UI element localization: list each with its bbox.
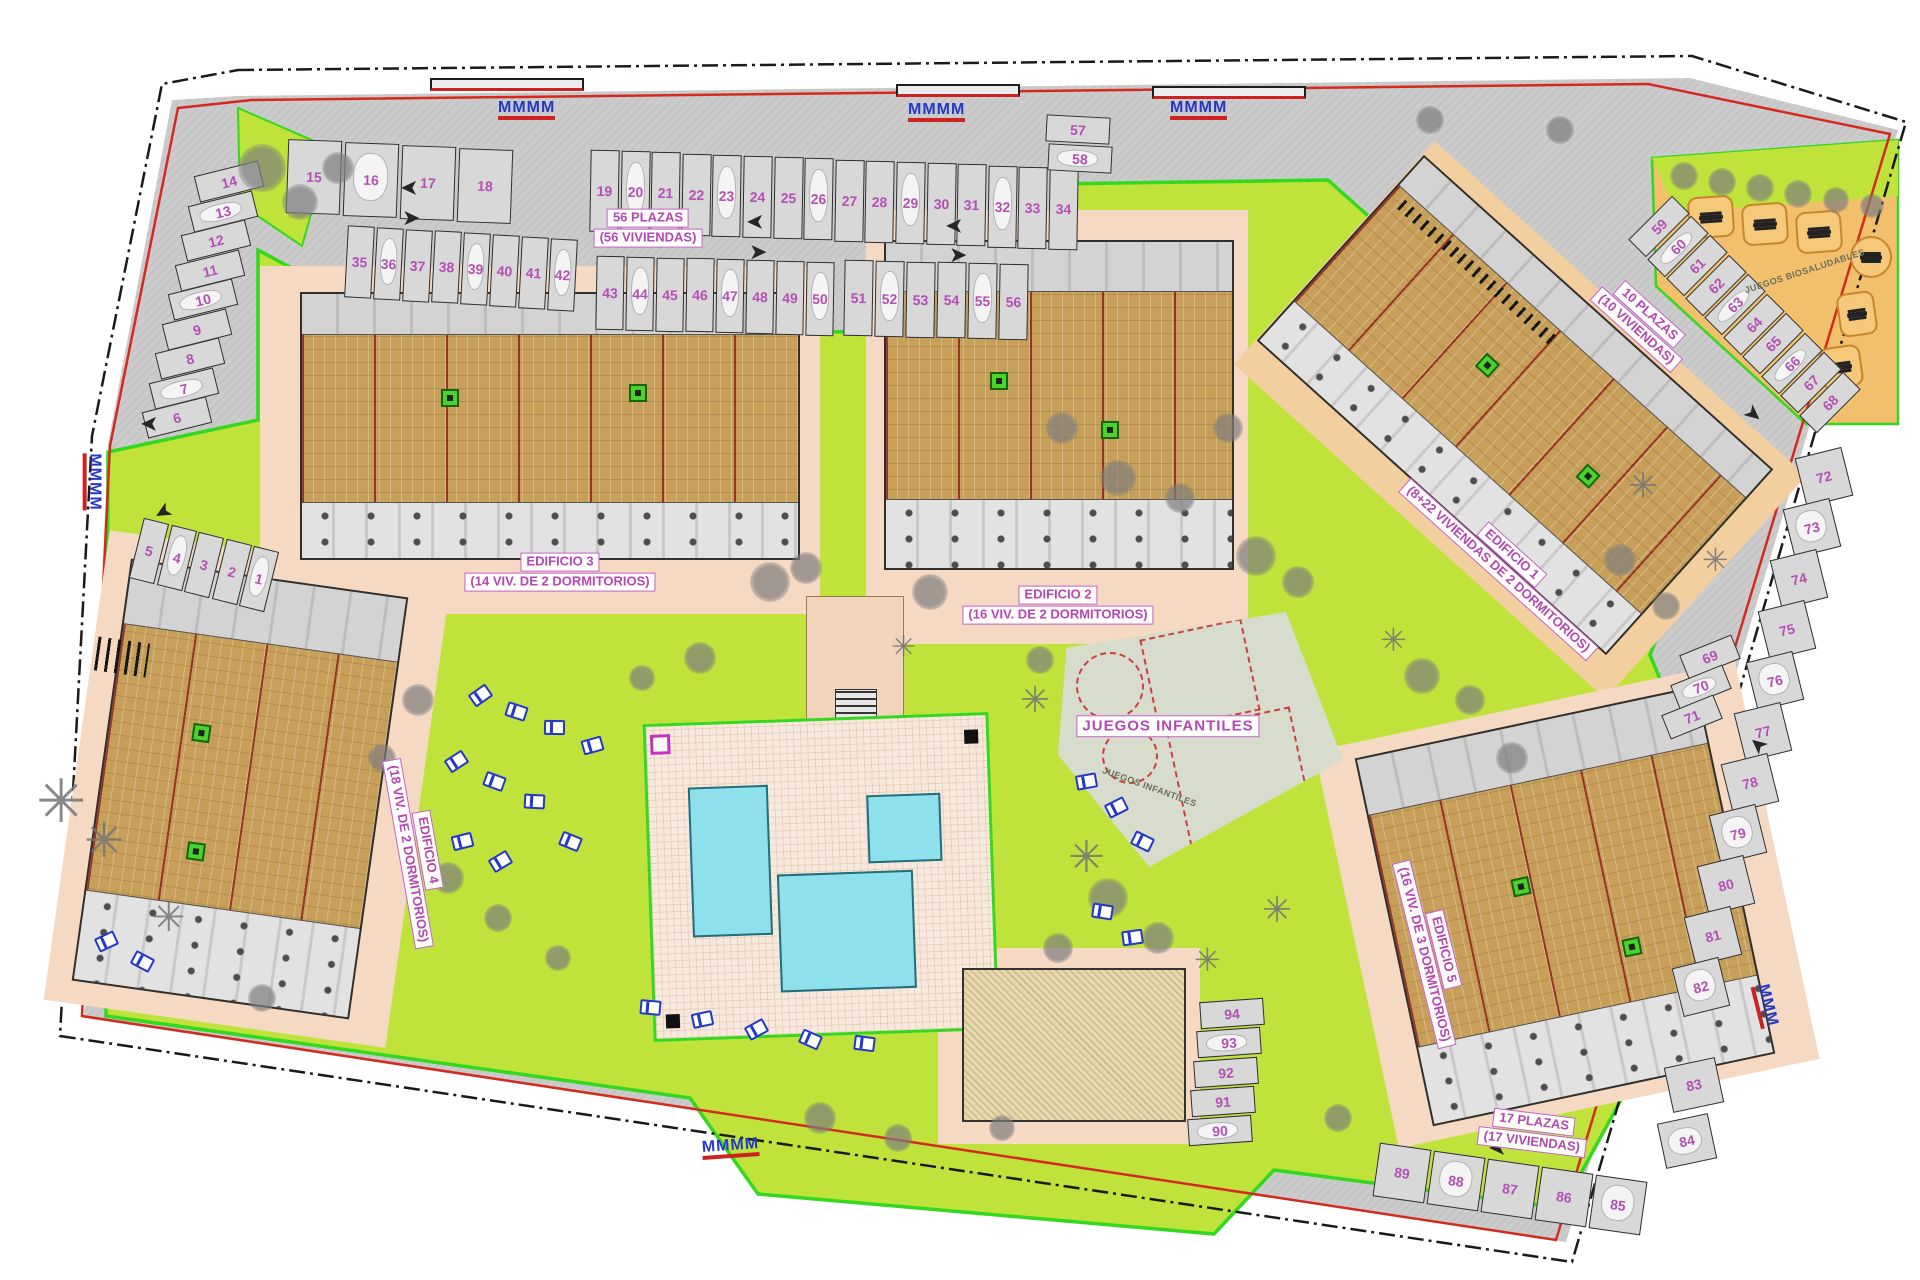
label-juegos-infantiles: JUEGOS INFANTILES: [1076, 714, 1259, 738]
parking-number: 87: [1501, 1180, 1519, 1198]
parking-number: 59: [1648, 215, 1670, 237]
parking-number: 44: [632, 286, 648, 302]
deck-corner-marker: [650, 734, 671, 755]
label-edificio-2: EDIFICIO 2 (16 VIV. DE 2 DORMITORIOS): [962, 585, 1153, 626]
parking-number: 10: [193, 290, 212, 309]
parking-number: 3: [198, 556, 209, 573]
parking-number: 75: [1778, 620, 1797, 639]
parking-number: 55: [975, 293, 991, 309]
parking-number: 43: [602, 285, 618, 301]
parking-number: 19: [597, 183, 613, 199]
elevator-core-icon: [441, 389, 459, 407]
bike-rack-icon: MMMM: [908, 102, 965, 122]
kids-pool: [866, 793, 942, 864]
parking-stall: 58: [1047, 143, 1112, 173]
parking-number: 69: [1700, 647, 1720, 668]
parking-number: 34: [1056, 201, 1072, 217]
palm-tree-icon: ✳: [1702, 544, 1729, 576]
parking-number: 21: [658, 185, 674, 201]
parking-number: 20: [627, 184, 643, 200]
parking-number: 62: [1705, 274, 1727, 296]
parking-number: 78: [1741, 773, 1760, 792]
palm-tree-icon: ✳: [1262, 892, 1292, 928]
parking-stall: 47: [715, 259, 744, 333]
parking-stall: 34: [1048, 168, 1078, 250]
elevator-core-icon: [1475, 353, 1500, 378]
parking-stall: 35: [344, 225, 375, 298]
parking-stall: 57: [1045, 114, 1110, 144]
parking-stall: 92: [1193, 1056, 1259, 1087]
building-edificio-4: [72, 559, 409, 1020]
bike-rack-icon: MMMM: [1170, 100, 1227, 120]
parking-number: 51: [851, 290, 867, 306]
tree-icon: [1404, 658, 1440, 694]
parking-number: 18: [477, 178, 493, 195]
parking-number: 53: [913, 291, 929, 307]
tree-icon: [750, 562, 790, 602]
tree-icon: [1026, 646, 1054, 674]
palm-tree-icon: ✳: [84, 818, 124, 866]
palm-tree-icon: ✳: [1628, 468, 1658, 504]
tree-icon: [1823, 187, 1849, 213]
deck-corner-marker: [666, 1014, 680, 1028]
tree-icon: [1043, 933, 1073, 963]
parking-stall: 52: [874, 261, 904, 337]
parking-stall: 42: [547, 238, 578, 311]
parking-number: 22: [688, 186, 704, 202]
parking-number: 46: [692, 287, 708, 303]
parking-number: 26: [811, 191, 827, 207]
tree-icon: [684, 642, 716, 674]
parking-number: 58: [1072, 150, 1088, 167]
parking-number: 71: [1682, 707, 1702, 728]
parking-number: 27: [841, 192, 857, 208]
parking-number: 94: [1224, 1005, 1241, 1022]
tree-icon: [1213, 413, 1243, 443]
parking-stall: 33: [1018, 167, 1048, 249]
canopy: [1152, 86, 1306, 99]
tree-icon: [1604, 544, 1636, 576]
tree-icon: [912, 574, 948, 610]
parking-number: 81: [1704, 926, 1723, 945]
parking-number: 80: [1716, 875, 1735, 894]
label-edificio-3: EDIFICIO 3 (14 VIV. DE 2 DORMITORIOS): [464, 552, 655, 593]
parking-number: 48: [752, 289, 768, 305]
traffic-arrow-icon: ➤: [746, 211, 764, 233]
label-line: JUEGOS INFANTILES: [1076, 715, 1259, 737]
fitness-equipment-pad: [1835, 290, 1879, 339]
parking-stall: 91: [1190, 1086, 1256, 1117]
parking-number: 57: [1070, 121, 1086, 138]
elevator-core-icon: [990, 372, 1008, 390]
traffic-arrow-icon: ➤: [402, 207, 420, 229]
parking-stall: 54: [936, 262, 966, 338]
parking-stall: 85: [1588, 1175, 1647, 1236]
parking-number: 13: [213, 201, 232, 220]
parking-stall: 48: [745, 260, 774, 334]
main-pool: [777, 870, 917, 993]
tree-icon: [884, 1124, 912, 1152]
tree-icon: [1708, 168, 1736, 196]
elevator-core-icon: [191, 723, 211, 743]
parking-number: 50: [812, 290, 828, 306]
fitness-equipment-icon: [1753, 221, 1778, 228]
parking-stall: 50: [805, 261, 834, 335]
pool-deck: [643, 712, 1000, 1042]
parking-stall: 89: [1372, 1143, 1431, 1204]
bike-rack-icon: MMMM: [83, 453, 103, 510]
fitness-equipment-icon: [1699, 214, 1724, 221]
sun-lounger-icon: [544, 720, 565, 735]
palm-tree-icon: ✳: [36, 772, 86, 832]
parking-stall: 49: [775, 261, 804, 335]
parking-number: 64: [1743, 313, 1765, 335]
tree-icon: [1746, 174, 1774, 202]
lap-pool: [688, 785, 773, 938]
parking-number: 93: [1221, 1034, 1238, 1051]
traffic-arrow-icon: ➤: [400, 177, 418, 199]
parking-stall: 51: [843, 260, 873, 336]
label-line: (14 VIV. DE 2 DORMITORIOS): [464, 573, 655, 592]
parking-number: 74: [1790, 569, 1809, 588]
tree-icon: [629, 665, 655, 691]
tree-icon: [238, 144, 286, 192]
palm-tree-icon: ✳: [1194, 944, 1221, 976]
parking-number: 31: [964, 197, 980, 213]
parking-stall: 32: [987, 165, 1017, 247]
parking-number: 24: [750, 189, 766, 205]
traffic-arrow-icon: ➤: [949, 244, 967, 266]
site-plan: 1516171819202122232425262728293031323334…: [0, 0, 1920, 1280]
parking-number: 12: [206, 231, 225, 250]
sun-lounger-icon: [639, 999, 661, 1016]
traffic-arrow-icon: ➤: [945, 215, 963, 237]
parking-stall: 18: [457, 148, 514, 224]
parking-number: 84: [1678, 1132, 1697, 1151]
parking-stall: 41: [518, 236, 549, 309]
parking-number: 36: [380, 255, 396, 272]
parking-stall: 86: [1534, 1167, 1593, 1228]
tree-icon: [790, 552, 822, 584]
parking-number: 83: [1685, 1076, 1704, 1095]
parking-number: 37: [409, 257, 425, 274]
parking-number: 47: [722, 288, 738, 304]
tree-icon: [1165, 483, 1195, 513]
parking-stall: 38: [431, 231, 462, 304]
parking-stall: 29: [895, 162, 925, 244]
label-line: (16 VIV. DE 2 DORMITORIOS): [962, 606, 1153, 625]
tree-icon: [1784, 180, 1812, 208]
parking-stall: 36: [373, 227, 404, 300]
parking-number: 72: [1814, 467, 1833, 486]
tree-icon: [1860, 194, 1884, 218]
fitness-equipment-pad: [1741, 201, 1790, 246]
parking-number: 28: [872, 194, 888, 210]
parking-stall: 93: [1196, 1027, 1262, 1058]
central-walkway: [806, 596, 904, 732]
parking-number: 41: [525, 264, 541, 281]
parking-number: 14: [219, 172, 238, 191]
parking-number: 17: [420, 175, 436, 192]
parking-number: 45: [662, 286, 678, 302]
community-building: [962, 968, 1186, 1122]
tree-icon: [1236, 536, 1276, 576]
storage-row: [94, 637, 150, 678]
parking-stall: 87: [1480, 1159, 1539, 1220]
parking-number: 23: [719, 188, 735, 204]
tree-icon: [484, 904, 512, 932]
label-line: 56 PLAZAS: [607, 209, 689, 228]
tree-icon: [1046, 412, 1078, 444]
label-line: EDIFICIO 3: [520, 553, 599, 572]
parking-stall: 25: [773, 157, 803, 239]
parking-number: 16: [363, 172, 379, 189]
elevator-core-icon: [1622, 936, 1643, 957]
parking-number: 2: [226, 563, 237, 580]
palm-tree-icon: ✳: [1020, 682, 1050, 718]
parking-number: 5: [143, 542, 154, 559]
parking-number: 89: [1393, 1164, 1411, 1182]
parking-number: 35: [351, 254, 367, 271]
parking-stall: 23: [712, 155, 742, 237]
palm-tree-icon: ✳: [1068, 836, 1105, 880]
parking-number: 29: [903, 195, 919, 211]
bike-rack-icon: MMMM: [701, 1136, 760, 1160]
label-line: (56 VIVIENDAS): [594, 229, 703, 248]
parking-number: 54: [944, 292, 960, 308]
sun-lounger-icon: [1121, 929, 1144, 947]
parking-number: 32: [994, 198, 1010, 214]
sun-lounger-icon: [524, 793, 546, 809]
parking-number: 38: [438, 259, 454, 276]
parking-number: 11: [200, 260, 218, 279]
parking-number: 92: [1218, 1064, 1235, 1081]
parking-stall: 40: [489, 234, 520, 307]
tree-icon: [1496, 742, 1528, 774]
canopy: [896, 84, 1020, 97]
elevator-core-icon: [1101, 421, 1119, 439]
tree-icon: [1546, 116, 1574, 144]
parking-number: 25: [780, 190, 796, 206]
palm-tree-icon: ✳: [152, 898, 186, 938]
elevator-core-icon: [1510, 876, 1531, 897]
parking-number: 88: [1447, 1172, 1465, 1190]
tree-icon: [1324, 1104, 1352, 1132]
palm-tree-icon: ✳: [1380, 624, 1407, 656]
parking-number: 6: [171, 409, 182, 426]
parking-stall: 53: [905, 261, 935, 337]
play-equipment-outline: [1076, 652, 1144, 720]
parking-number: 86: [1555, 1188, 1573, 1206]
parking-number: 85: [1609, 1196, 1627, 1214]
parking-number: 42: [554, 266, 570, 283]
parking-stall: 39: [460, 233, 491, 306]
palm-tree-icon: ✳: [891, 633, 916, 663]
fitness-equipment-icon: [1847, 310, 1867, 318]
parking-number: 9: [191, 320, 202, 337]
tree-icon: [804, 1102, 836, 1134]
tree-icon: [1455, 685, 1485, 715]
parking-stall: 43: [595, 256, 624, 330]
tree-icon: [1100, 460, 1136, 496]
deck-corner-marker: [964, 729, 978, 743]
parking-stall: 44: [625, 257, 654, 331]
sun-lounger-icon: [853, 1035, 876, 1052]
parking-number: 67: [1800, 371, 1822, 393]
tree-icon: [1282, 566, 1314, 598]
fitness-equipment-pad: [1795, 209, 1844, 254]
tree-icon: [322, 152, 354, 184]
parking-number: 15: [306, 169, 322, 186]
parking-stall: 94: [1199, 998, 1265, 1029]
canopy: [430, 78, 584, 91]
sun-lounger-icon: [1091, 902, 1114, 920]
parking-number: 39: [467, 261, 483, 278]
parking-stall: 88: [1426, 1151, 1485, 1212]
parking-number: 65: [1762, 332, 1784, 354]
traffic-arrow-icon: ➤: [140, 413, 158, 435]
parking-number: 33: [1025, 200, 1041, 216]
elevator-core-icon: [186, 841, 206, 861]
tree-icon: [1670, 162, 1698, 190]
parking-stall: 28: [865, 161, 895, 243]
parking-number: 91: [1215, 1093, 1232, 1110]
parking-stall: 27: [834, 159, 864, 241]
elevator-core-icon: [629, 384, 647, 402]
tree-icon: [1652, 592, 1680, 620]
tree-icon: [402, 684, 434, 716]
label-56-plazas: 56 PLAZAS (56 VIVIENDAS): [594, 208, 703, 249]
parking-number: 30: [933, 196, 949, 212]
parking-stall: 55: [967, 263, 997, 339]
parking-number: 68: [1819, 391, 1841, 413]
parking-stall: 45: [655, 257, 684, 331]
parking-number: 49: [782, 290, 798, 306]
parking-stall: 46: [685, 258, 714, 332]
traffic-arrow-icon: ➤: [749, 241, 767, 263]
tree-icon: [282, 184, 318, 220]
parking-number: 90: [1212, 1122, 1229, 1139]
parking-number: 56: [1006, 294, 1022, 310]
parking-stall: 26: [803, 158, 833, 240]
parking-number: 52: [882, 291, 898, 307]
parking-number: 8: [184, 350, 195, 367]
tree-icon: [989, 1115, 1015, 1141]
label-line: EDIFICIO 2: [1018, 586, 1097, 605]
parking-stall: 90: [1187, 1115, 1253, 1146]
tree-icon: [1416, 106, 1444, 134]
tree-icon: [1142, 922, 1174, 954]
tree-icon: [248, 984, 276, 1012]
parking-stall: 37: [402, 229, 433, 302]
bike-rack-icon: MMMM: [498, 100, 555, 120]
building-terraces: [302, 502, 798, 558]
tree-icon: [545, 945, 571, 971]
parking-number: 40: [496, 263, 512, 280]
parking-stall: 16: [343, 142, 400, 218]
elevator-core-icon: [1576, 464, 1601, 489]
fitness-equipment-icon: [1807, 229, 1832, 236]
parking-stall: 56: [998, 264, 1028, 340]
parking-number: 61: [1686, 254, 1708, 276]
